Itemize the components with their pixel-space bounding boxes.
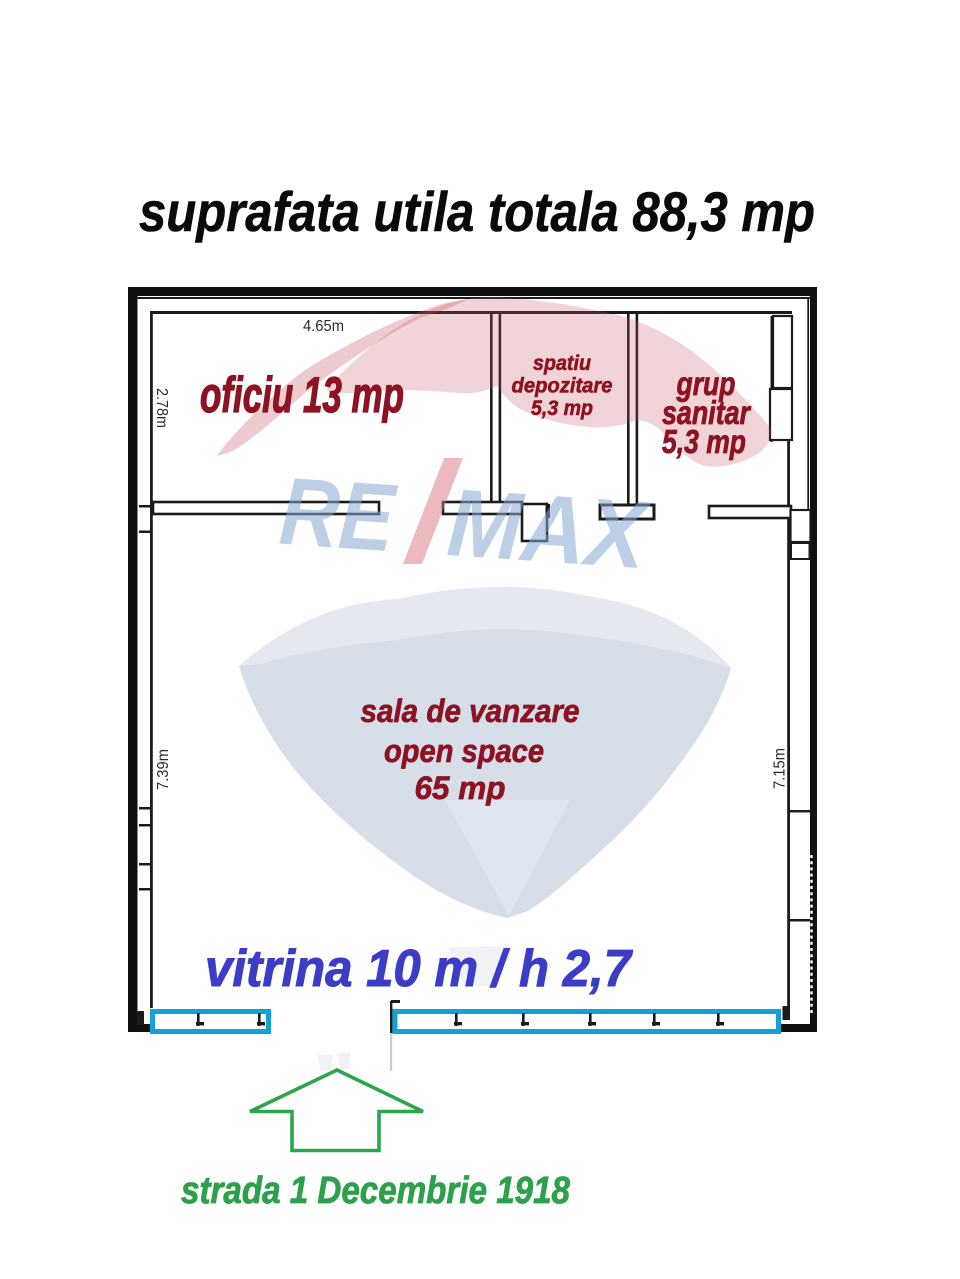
svg-text:5,3 mp: 5,3 mp <box>531 396 593 420</box>
svg-text:spatiu: spatiu <box>533 351 591 375</box>
svg-text:7.15m: 7.15m <box>772 748 789 789</box>
svg-text:RE: RE <box>277 458 401 573</box>
svg-text:7.39m: 7.39m <box>155 749 172 790</box>
svg-text:vitrina 10 m / h 2,7: vitrina 10 m / h 2,7 <box>205 940 633 998</box>
svg-text:4.65m: 4.65m <box>303 318 344 335</box>
svg-text:strada 1 Decembrie 1918: strada 1 Decembrie 1918 <box>181 1170 571 1212</box>
svg-text:MAX: MAX <box>444 469 653 590</box>
svg-text:depozitare: depozitare <box>512 374 613 398</box>
svg-text:2.78m: 2.78m <box>153 388 170 428</box>
svg-text:oficiu 13 mp: oficiu 13 mp <box>200 367 404 423</box>
svg-text:open space: open space <box>384 733 544 769</box>
svg-text:65 mp: 65 mp <box>415 770 506 806</box>
svg-text:suprafata utila totala 88,3 mp: suprafata utila totala 88,3 mp <box>139 180 815 243</box>
svg-text:5,3 mp: 5,3 mp <box>662 423 746 460</box>
svg-text:sala de vanzare: sala de vanzare <box>361 693 580 729</box>
